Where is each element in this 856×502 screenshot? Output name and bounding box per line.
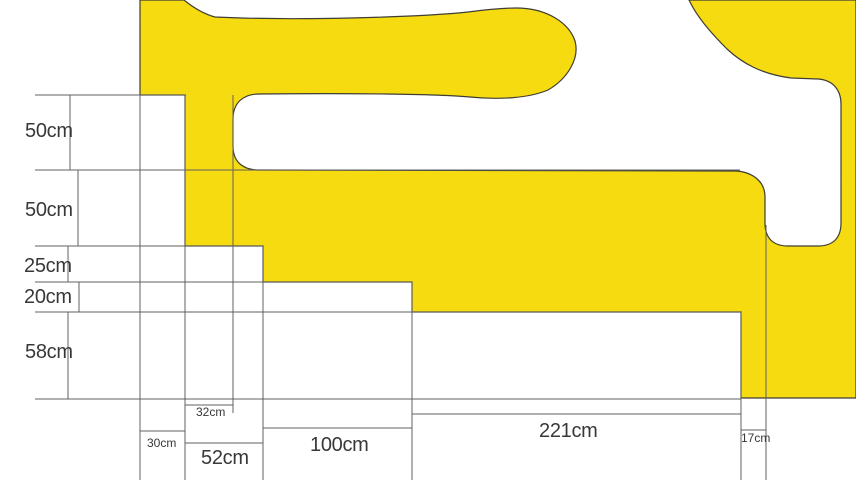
yellow-shape-outline bbox=[140, 0, 856, 398]
dim-label-32cm: 32cm bbox=[196, 405, 225, 419]
dim-label-221cm: 221cm bbox=[539, 420, 598, 442]
dim-label-50cm-row2: 50cm bbox=[25, 199, 73, 221]
technical-drawing-canvas: 50cm 50cm 25cm 20cm 58cm 30cm 52cm 32cm … bbox=[0, 0, 856, 502]
dim-label-58cm: 58cm bbox=[25, 341, 73, 363]
dim-label-50cm-row1: 50cm bbox=[25, 120, 73, 142]
dim-label-30cm: 30cm bbox=[147, 436, 176, 450]
dimension-drawing-svg: 50cm 50cm 25cm 20cm 58cm 30cm 52cm 32cm … bbox=[0, 0, 856, 502]
dim-label-52cm: 52cm bbox=[201, 447, 249, 469]
dim-label-25cm: 25cm bbox=[24, 255, 72, 277]
dim-label-17cm: 17cm bbox=[741, 431, 770, 445]
dim-label-100cm: 100cm bbox=[310, 434, 369, 456]
dim-label-20cm: 20cm bbox=[24, 286, 72, 308]
